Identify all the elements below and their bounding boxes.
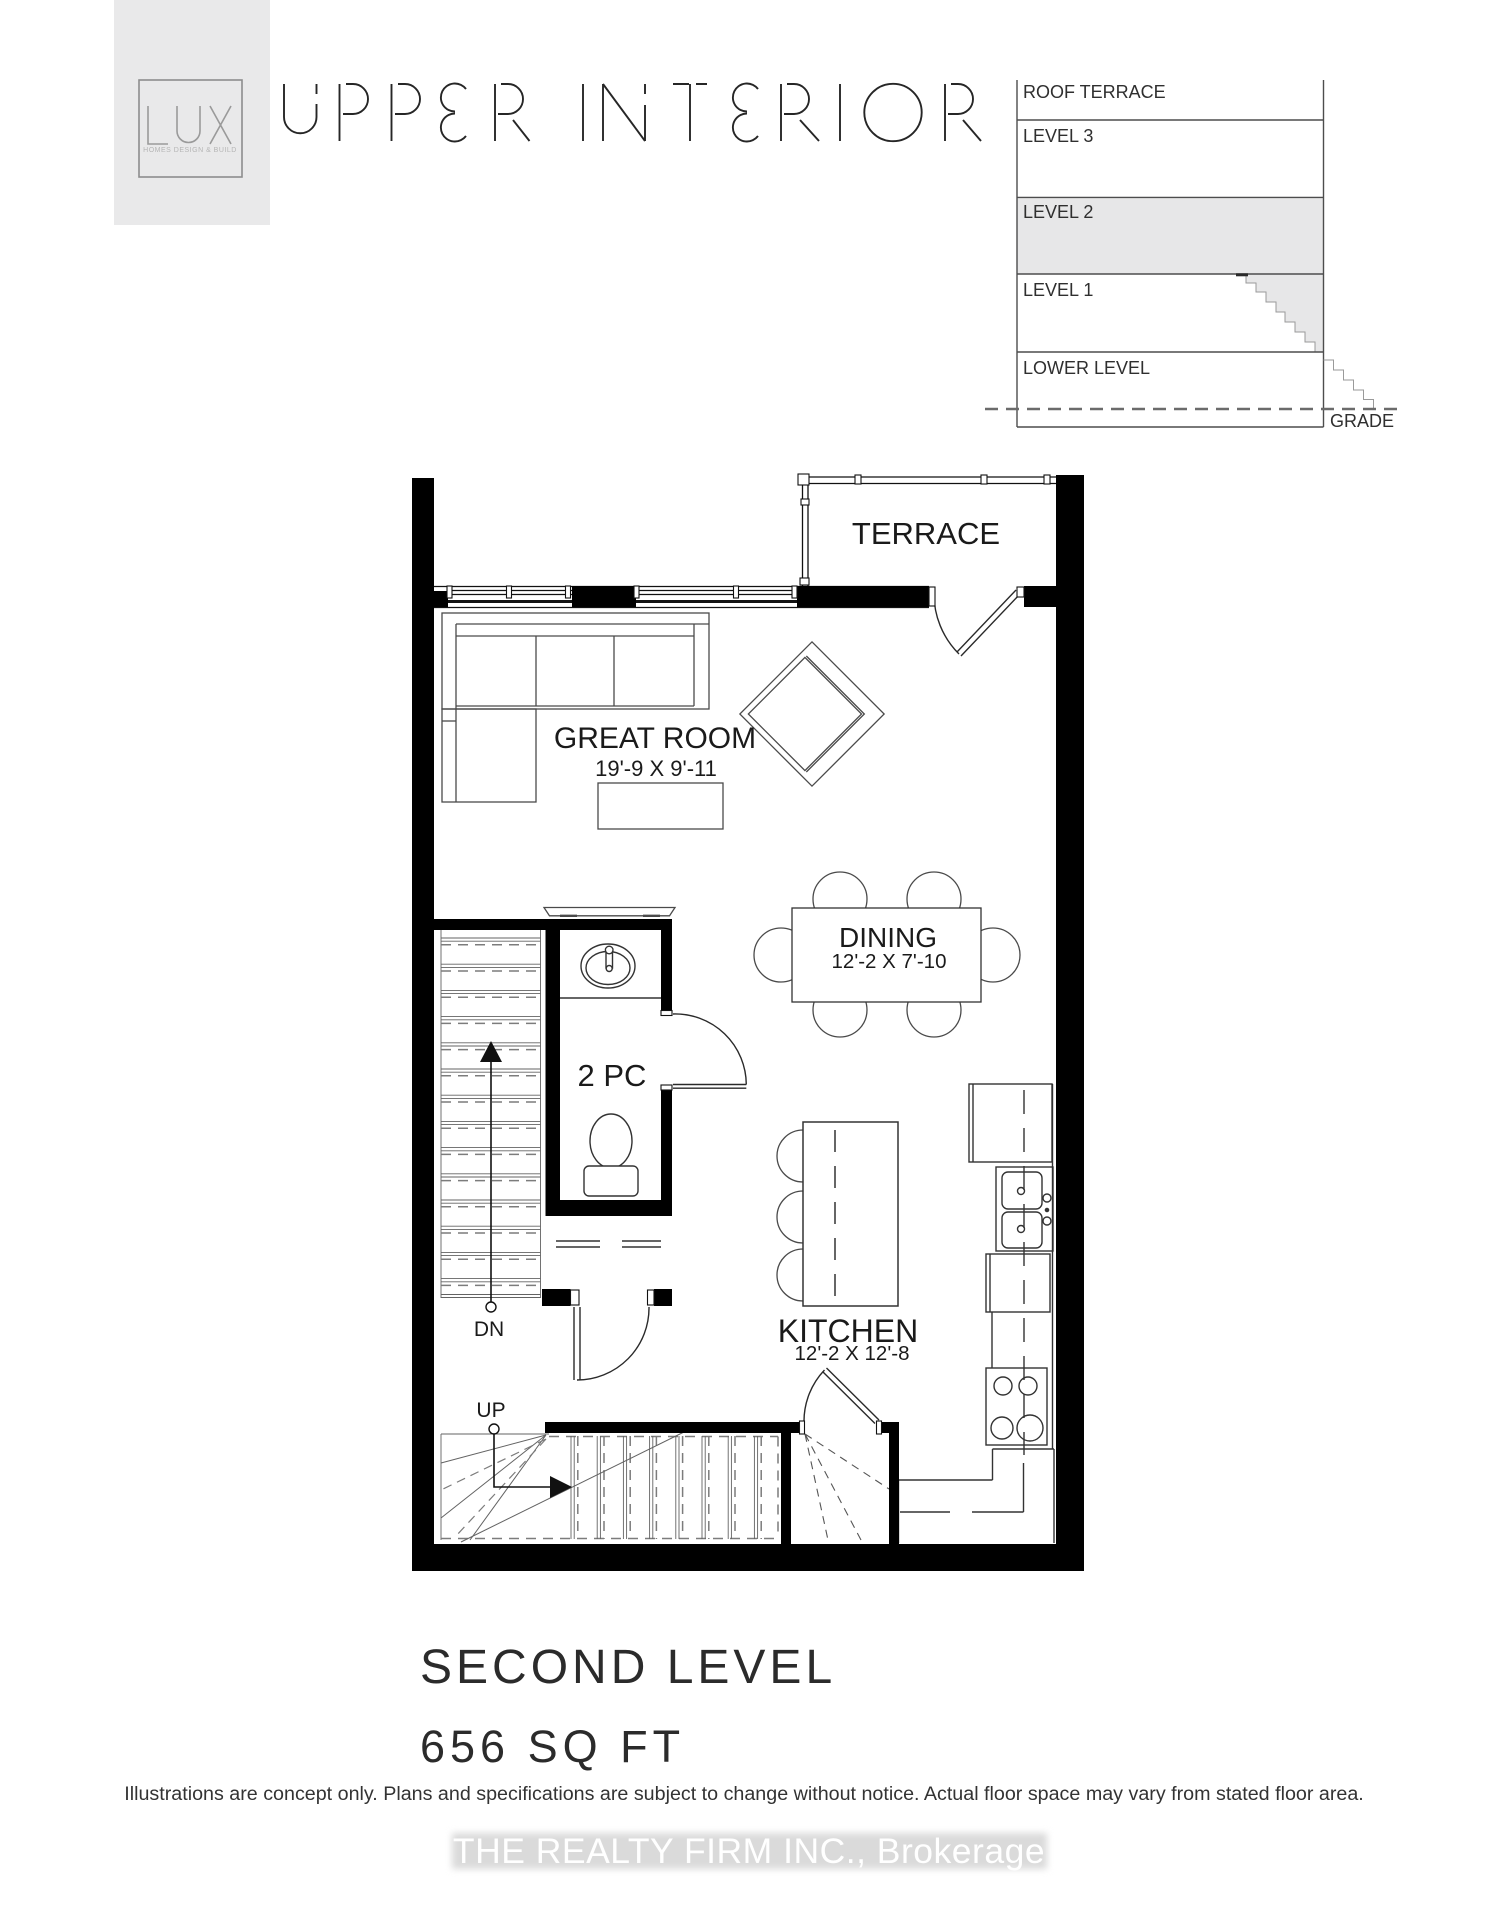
svg-text:2 PC: 2 PC [578, 1058, 647, 1093]
svg-text:Illustrations are concept only: Illustrations are concept only. Plans an… [124, 1783, 1364, 1805]
svg-text:LOWER LEVEL: LOWER LEVEL [1023, 358, 1150, 378]
svg-text:GREAT ROOM: GREAT ROOM [554, 722, 756, 755]
svg-text:656 SQ FT: 656 SQ FT [420, 1721, 685, 1772]
svg-text:HOMES DESIGN & BUILD: HOMES DESIGN & BUILD [143, 147, 237, 154]
svg-text:LEVEL 1: LEVEL 1 [1023, 280, 1093, 300]
svg-text:GRADE: GRADE [1330, 411, 1394, 431]
svg-text:LEVEL 3: LEVEL 3 [1023, 126, 1093, 146]
svg-text:12'-2 X 12'-8: 12'-2 X 12'-8 [795, 1342, 910, 1365]
svg-text:DN: DN [474, 1318, 504, 1341]
svg-text:19'-9 X 9'-11: 19'-9 X 9'-11 [595, 756, 717, 781]
svg-text:TERRACE: TERRACE [852, 516, 1000, 551]
svg-text:12'-2 X 7'-10: 12'-2 X 7'-10 [832, 950, 947, 973]
svg-text:UP: UP [476, 1399, 505, 1422]
svg-text:SECOND LEVEL: SECOND LEVEL [420, 1641, 836, 1694]
svg-text:LEVEL 2: LEVEL 2 [1023, 202, 1093, 222]
svg-text:ROOF TERRACE: ROOF TERRACE [1023, 82, 1166, 102]
svg-text:DINING: DINING [839, 922, 937, 953]
svg-text:THE REALTY FIRM INC., Brokerag: THE REALTY FIRM INC., Brokerage [453, 1831, 1045, 1871]
